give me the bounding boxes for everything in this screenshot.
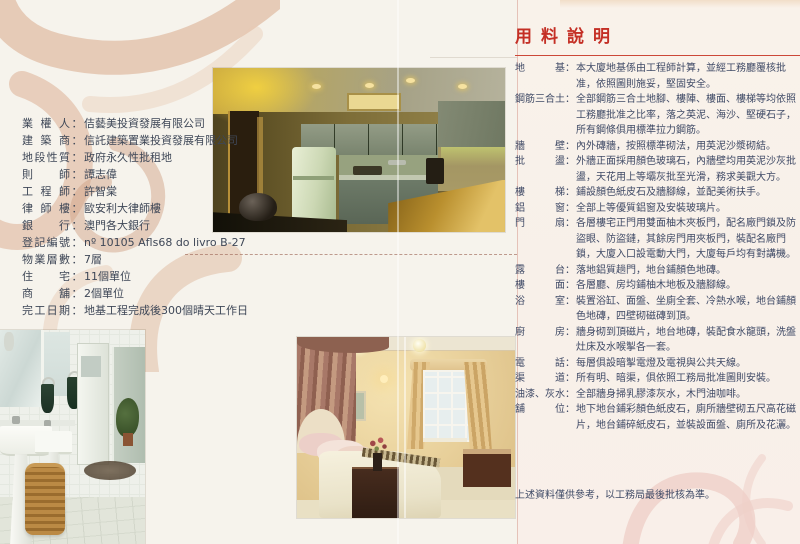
colon: ： [70,217,84,234]
ceiling-light [406,78,415,83]
kitchen-right-cabinets [438,101,505,147]
bedroom-bench [463,449,511,487]
brochure-page: 業權人：佶藝美投資發展有限公司 建築商：信託建築置業投資發展有限公司 地段性質：… [0,0,800,544]
colon: ： [70,183,84,200]
colon: ： [565,371,576,387]
spec-item-drainage: 渠道：所有明、暗渠，俱依照工務局批准圖則安裝。 [515,371,797,387]
info-label: 地段性質 [22,149,70,166]
kitchen-skylight [347,93,401,112]
colon: ： [565,294,576,325]
colon: ： [70,234,84,251]
spec-label: 樓梯 [515,185,565,201]
info-value: 信託建築置業投資發展有限公司 [84,132,322,149]
info-row-architect: 則師：譚志偉 [22,166,322,183]
info-value: 地基工程完成後300個晴天工作日 [84,302,322,319]
spec-item-telephone: 電話：每層俱設暗掣電燈及電視與公共天線。 [515,356,797,372]
info-row-completion: 完工日期：地基工程完成後300個晴天工作日 [22,302,322,319]
info-value: nº 10105 Afls68 do livro B-27 [84,234,322,251]
top-edge-tint [560,0,800,8]
spec-text: 鋪設顏色紙皮石及牆腳線，並配美術扶手。 [576,185,797,201]
spec-item-plastering: 批盪：外牆正面採用顏色玻璃石，內牆壁均用英泥沙灰批盪，天花用上等壩灰批至光滑，務… [515,154,797,185]
info-label: 物業層數 [22,251,70,268]
disclaimer-note: 上述資料僅供參考，以工務局最後批核為準。 [515,486,797,501]
spec-label: 地基 [515,61,565,92]
colon: ： [565,387,576,403]
colon: ： [565,325,576,356]
spec-item-paint: 油漆、灰水：全部牆身掃乳膠漆灰水，木門油咖啡。 [515,387,797,403]
kitchen-under-cabinet-light [441,147,505,167]
bedroom-photo [297,337,515,518]
spec-item-walls: 牆壁：內外磚牆，按照標準砌法，用英泥沙漿砌結。 [515,139,797,155]
info-row-residential-units: 住宅：11個單位 [22,268,322,285]
spec-text: 本大廈地基係由工程師計算，並經工務廳覆核批准，依照圖則施妥，堅固安全。 [576,61,797,92]
info-label: 建築商 [22,132,70,149]
coffee-maker [426,158,444,184]
spec-label: 樓面 [515,278,565,294]
colon: ： [565,216,576,263]
spec-item-concrete: 鋼筋三合土：全部鋼筋三合土地腳、樓陣、樓面、樓梯等均依照工務廳批准之比率，落之英… [515,92,797,139]
spec-text: 牆身砌到頂磁片，地台地磚，裝配食水龍頭，洗盤灶床及水喉掣各一套。 [576,325,797,356]
colon: ： [565,61,576,92]
info-label: 商舖 [22,285,70,302]
nightstand [352,467,400,518]
info-row-shop-units: 商舖：2個單位 [22,285,322,302]
spec-label: 露台 [515,263,565,279]
spec-label: 門扇 [515,216,565,263]
spec-item-foundation: 地基：本大廈地基係由工程師計算，並經工務廳覆核批准，依照圖則施妥，堅固安全。 [515,61,797,92]
spec-label: 舖位 [515,402,565,433]
spec-item-kitchen: 廚房：牆身砌到頂磁片，地台地磚，裝配食水龍頭，洗盤灶床及水喉掣各一套。 [515,325,797,356]
colon: ： [565,154,576,185]
info-value: 政府永久性批租地 [84,149,322,166]
info-label: 律師樓 [22,200,70,217]
info-value: 2個單位 [84,285,322,302]
spec-text: 全部鋼筋三合土地腳、樓陣、樓面、樓梯等均依照工務廳批准之比率，落之英泥、海沙、堅… [576,92,797,139]
potted-plant [116,398,139,437]
info-label: 工程師 [22,183,70,200]
colon: ： [70,302,84,319]
info-value: 7層 [84,251,322,268]
info-row-land-type: 地段性質：政府永久性批租地 [22,149,322,166]
crease-line-horizontal [430,57,517,58]
spec-text: 每層俱設暗掣電燈及電視與公共天線。 [576,356,797,372]
cabinet-glass-panel [81,356,101,377]
spec-label: 鋁窗 [515,201,565,217]
spec-text: 落地鋁質趟門，地台鋪顏色地磚。 [576,263,797,279]
colon: ： [565,263,576,279]
spec-item-stairs: 樓梯：鋪設顏色紙皮石及牆腳線，並配美術扶手。 [515,185,797,201]
spec-text: 所有明、暗渠，俱依照工務局批准圖則安裝。 [576,371,797,387]
flowers [365,435,391,457]
spec-text: 地下地台鋪彩顏色紙皮石，廁所牆壁砌五尺高花磁片，地台鋪碎紙皮石，並裝設面盤、廁所… [576,402,797,433]
spec-text: 外牆正面採用顏色玻璃石，內牆壁均用英泥沙灰批盪，天花用上等壩灰批至光滑，務求美觀… [576,154,797,185]
colon: ： [70,285,84,302]
colon: ： [565,278,576,294]
ceiling-light [365,83,374,88]
info-value: 歐安利大律師樓 [84,200,322,217]
spec-label: 電話 [515,356,565,372]
spec-text: 裝置浴缸、面盤、坐廁全套、冷熱水喉，地台鋪顏色地磚，四壁砌磁磚到頂。 [576,294,797,325]
spec-label: 油漆、灰水 [515,387,565,403]
materials-spec-panel: 地基：本大廈地基係由工程師計算，並經工務廳覆核批准，依照圖則施妥，堅固安全。 鋼… [515,61,797,433]
colon: ： [565,356,576,372]
info-label: 完工日期 [22,302,70,319]
spec-item-doors: 門扇：各層樓宅正門用雙面柚木夾板門，配名廠門鎖及防盜眼、防盜鏈，其餘房門用夾板門… [515,216,797,263]
spec-label: 廚房 [515,325,565,356]
spec-title-block: 用料說明 [515,22,800,56]
spec-item-flooring: 樓面：各層廳、房均鋪柚木地板及牆腳線。 [515,278,797,294]
spec-label: 浴室 [515,294,565,325]
spec-item-shops: 舖位：地下地台鋪彩顏色紙皮石，廁所牆壁砌五尺高花磁片，地台鋪碎紙皮石，並裝設面盤… [515,402,797,433]
info-value: 許智棠 [84,183,322,200]
spec-label: 批盪 [515,154,565,185]
colon: ： [565,139,576,155]
spec-title: 用料說明 [515,22,800,47]
spec-item-balcony: 露台：落地鋁質趟門，地台鋪顏色地磚。 [515,263,797,279]
info-row-bank: 銀行：澳門各大銀行 [22,217,322,234]
colon: ： [565,201,576,217]
colon: ： [70,166,84,183]
colon: ： [70,251,84,268]
bathroom-photo [0,330,145,544]
info-value: 譚志偉 [84,166,322,183]
info-value: 11個單位 [84,268,322,285]
spec-item-bathroom: 浴室：裝置浴缸、面盤、坐廁全套、冷熱水喉，地台鋪顏色地磚，四壁砌磁磚到頂。 [515,294,797,325]
kitchen-counter-items [353,166,382,174]
spec-label: 牆壁 [515,139,565,155]
info-label: 業權人 [22,115,70,132]
info-row-owner: 業權人：佶藝美投資發展有限公司 [22,115,322,132]
spec-text: 各層廳、房均鋪柚木地板及牆腳線。 [576,278,797,294]
photo-fold-highlight [404,337,406,518]
spec-label: 鋼筋三合土 [515,92,565,139]
spec-item-windows: 鋁窗：全部上等優質鋁窗及安裝玻璃片。 [515,201,797,217]
window-sill [423,438,467,442]
spec-text: 全部牆身掃乳膠漆灰水，木門油咖啡。 [576,387,797,403]
colon: ： [565,402,576,433]
wall-sconce [380,375,388,383]
spec-text: 全部上等優質鋁窗及安裝玻璃片。 [576,201,797,217]
info-row-law-firm: 律師樓：歐安利大律師樓 [22,200,322,217]
colon: ： [70,268,84,285]
crease-line-vertical [397,0,399,544]
info-label: 住宅 [22,268,70,285]
info-row-registration: 登記編號：nº 10105 Afls68 do livro B-27 [22,234,322,251]
info-row-floors: 物業層數：7層 [22,251,322,268]
info-label: 登記編號 [22,234,70,251]
info-row-engineer: 工程師：許智棠 [22,183,322,200]
spec-label: 渠道 [515,371,565,387]
colon: ： [70,115,84,132]
info-value: 佶藝美投資發展有限公司 [84,115,322,132]
colon: ： [70,132,84,149]
info-value: 澳門各大銀行 [84,217,322,234]
colon: ： [70,200,84,217]
info-label: 則師 [22,166,70,183]
colon: ： [565,185,576,201]
spec-text: 各層樓宅正門用雙面柚木夾板門，配名廠門鎖及防盜眼、防盜鏈，其餘房門用夾板門，裝配… [576,216,797,263]
wicker-basket [25,463,66,535]
colon: ： [565,92,576,139]
pedestal-sink-basin [35,431,73,454]
property-info-panel: 業權人：佶藝美投資發展有限公司 建築商：信託建築置業投資發展有限公司 地段性質：… [22,115,322,319]
bathroom-rug [84,461,136,480]
sink-faucet [12,416,21,425]
info-row-builder: 建築商：信託建築置業投資發展有限公司 [22,132,322,149]
bedroom-window [423,370,471,443]
plant-pot [123,433,133,446]
info-label: 銀行 [22,217,70,234]
colon: ： [70,149,84,166]
ceiling-light [413,339,426,352]
green-towel [41,384,54,414]
spec-text: 內外磚牆，按照標準砌法，用英泥沙漿砌結。 [576,139,797,155]
